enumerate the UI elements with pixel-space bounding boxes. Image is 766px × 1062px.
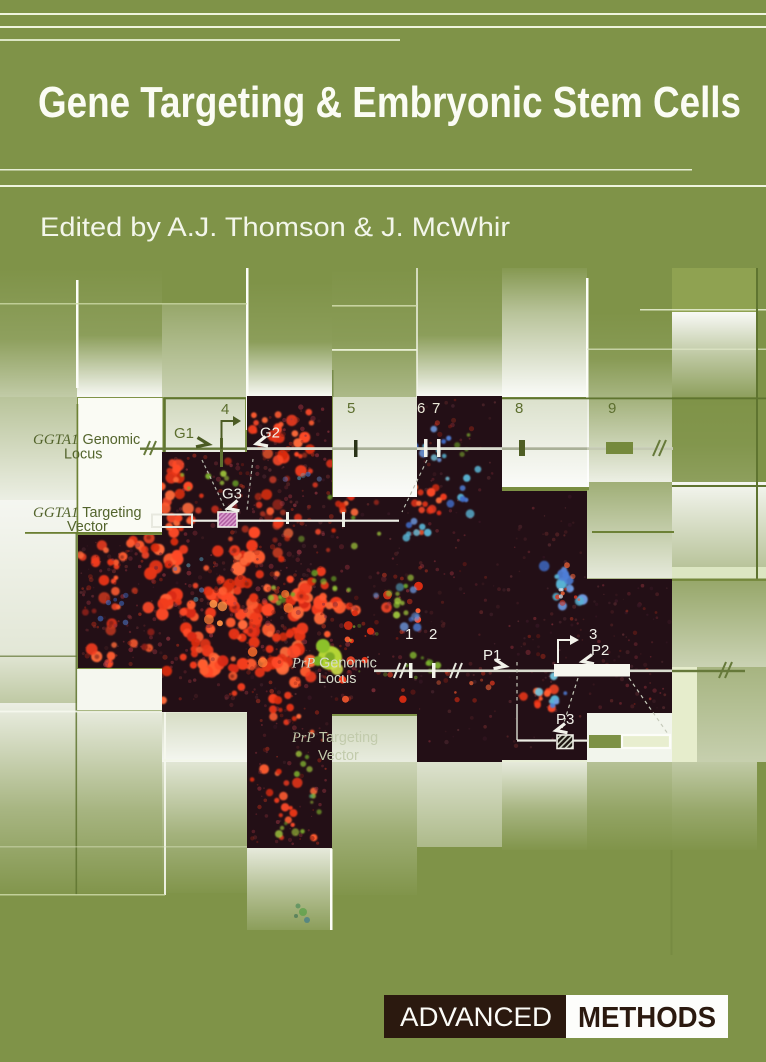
svg-text:1: 1 [405, 626, 413, 643]
svg-text:ADVANCED: ADVANCED [400, 1002, 552, 1032]
svg-text:PrP Targeting: PrP Targeting [291, 730, 378, 746]
svg-text:7: 7 [432, 400, 440, 417]
svg-text:METHODS: METHODS [578, 1002, 716, 1034]
svg-text:G3: G3 [222, 486, 242, 503]
svg-text:2: 2 [429, 626, 437, 643]
svg-text:4: 4 [221, 401, 229, 418]
svg-text:6: 6 [417, 400, 425, 417]
svg-text:Vector: Vector [67, 519, 108, 535]
svg-text:Gene Targeting & Embryonic Ste: Gene Targeting & Embryonic Stem Cells [38, 78, 741, 127]
svg-text:8: 8 [515, 400, 523, 417]
svg-text:G1: G1 [174, 425, 194, 442]
svg-text:5: 5 [347, 400, 355, 417]
svg-text:Vector: Vector [318, 748, 359, 764]
svg-text:Locus: Locus [64, 447, 102, 463]
svg-text:Edited by A.J. Thomson & J. Mc: Edited by A.J. Thomson & J. McWhir [40, 212, 510, 242]
svg-text:P3: P3 [556, 711, 574, 728]
svg-text:3: 3 [589, 626, 597, 643]
svg-text:9: 9 [608, 400, 616, 417]
svg-text:P2: P2 [591, 642, 609, 659]
svg-text:Locus: Locus [318, 671, 356, 687]
svg-text:PrP Genomic: PrP Genomic [291, 656, 377, 672]
